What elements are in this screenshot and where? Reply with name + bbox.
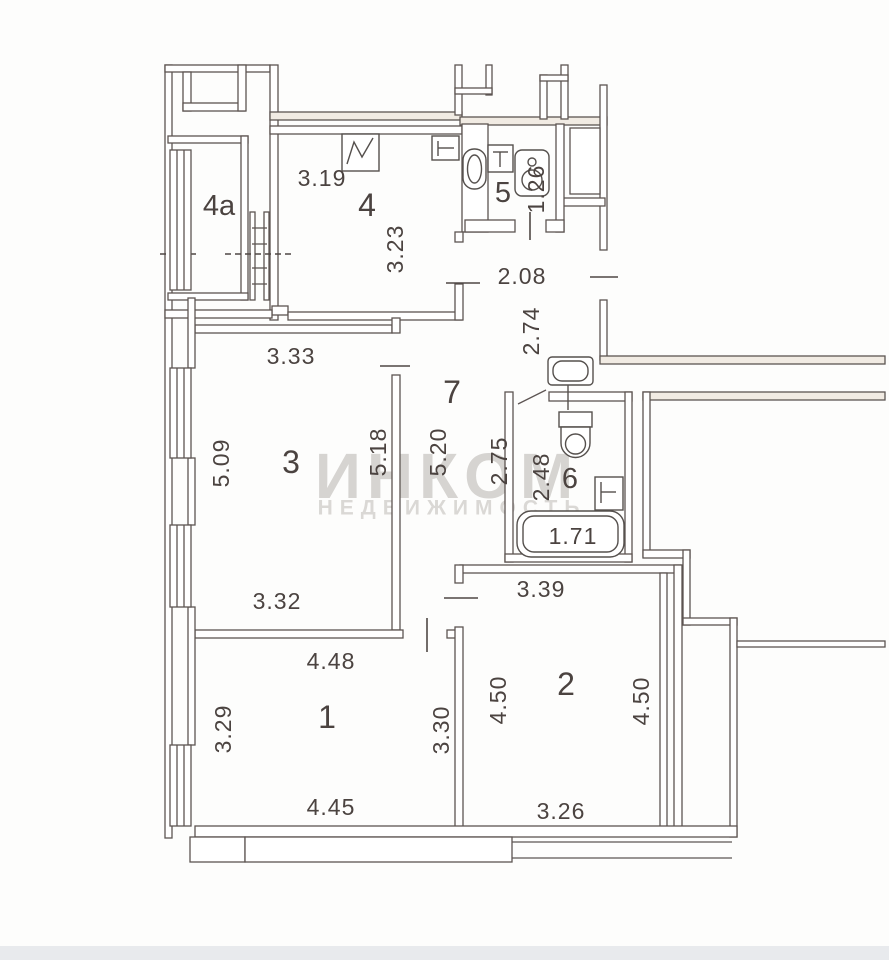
dim-room2-top: 3.39 bbox=[517, 576, 566, 602]
dim-kitchen-depth: 3.23 bbox=[382, 225, 408, 274]
porch-slab bbox=[190, 837, 245, 862]
floor-plan: ИНКОМ НЕДВИЖИМОСТЬ bbox=[0, 0, 889, 960]
windows bbox=[170, 150, 195, 826]
dim-room2-bottom: 3.26 bbox=[537, 798, 586, 824]
towel-rail-symbol bbox=[595, 477, 623, 510]
dim-room2-right: 4.50 bbox=[628, 677, 654, 726]
window-symbol bbox=[170, 745, 191, 826]
dim-room3-bottom: 3.32 bbox=[253, 588, 302, 614]
room-2-label: 2 bbox=[557, 666, 575, 702]
right-exterior-walls bbox=[560, 85, 885, 837]
dim-room1-right: 3.30 bbox=[428, 706, 454, 755]
dim-corridor-length: 5.20 bbox=[425, 428, 451, 477]
washbasin-symbol bbox=[488, 145, 513, 172]
floor-plan-image: ИНКОМ НЕДВИЖИМОСТЬ bbox=[0, 0, 889, 960]
dim-room1-top: 4.48 bbox=[307, 648, 356, 674]
window-symbol bbox=[170, 150, 191, 290]
ventilation-shaft bbox=[570, 128, 600, 194]
dim-room1-left: 3.29 bbox=[210, 705, 236, 754]
dim-hall-width: 2.08 bbox=[498, 263, 547, 289]
room-5-label: 5 bbox=[495, 177, 511, 209]
dim-room1-bottom: 4.45 bbox=[307, 794, 356, 820]
room-7-label: 7 bbox=[443, 374, 461, 410]
dim-hall-depth: 2.74 bbox=[518, 307, 544, 356]
balcony-slab bbox=[245, 837, 512, 862]
window-symbol bbox=[170, 525, 191, 607]
bath-washbasin-symbol bbox=[548, 357, 593, 410]
toilet-symbol-bathroom bbox=[559, 412, 592, 458]
room-3-label: 3 bbox=[282, 444, 300, 480]
dim-room3-right: 5.18 bbox=[365, 428, 391, 477]
dim-room3-left: 5.09 bbox=[208, 439, 234, 488]
dim-kitchen-width: 3.19 bbox=[298, 165, 347, 191]
window-symbol bbox=[170, 368, 191, 458]
room-4a-label: 4a bbox=[203, 190, 236, 222]
room-1-label: 1 bbox=[318, 699, 336, 735]
scan-edge-strip bbox=[0, 946, 889, 960]
room-4-label: 4 bbox=[358, 187, 376, 223]
radiator-symbol bbox=[432, 136, 459, 160]
dim-corridor-branch: 2.75 bbox=[486, 437, 512, 486]
dim-room3-width: 3.33 bbox=[267, 343, 316, 369]
kitchen-sink-symbol bbox=[463, 149, 486, 189]
stove-symbol bbox=[342, 134, 379, 171]
dim-wc-depth: 1.26 bbox=[523, 165, 549, 214]
room-6-label: 6 bbox=[562, 463, 578, 495]
dim-bathtub-length: 1.71 bbox=[549, 523, 598, 549]
dim-bathroom-depth: 2.48 bbox=[528, 453, 554, 502]
bathroom-door-leaf bbox=[518, 390, 546, 404]
dim-room2-left: 4.50 bbox=[485, 676, 511, 725]
